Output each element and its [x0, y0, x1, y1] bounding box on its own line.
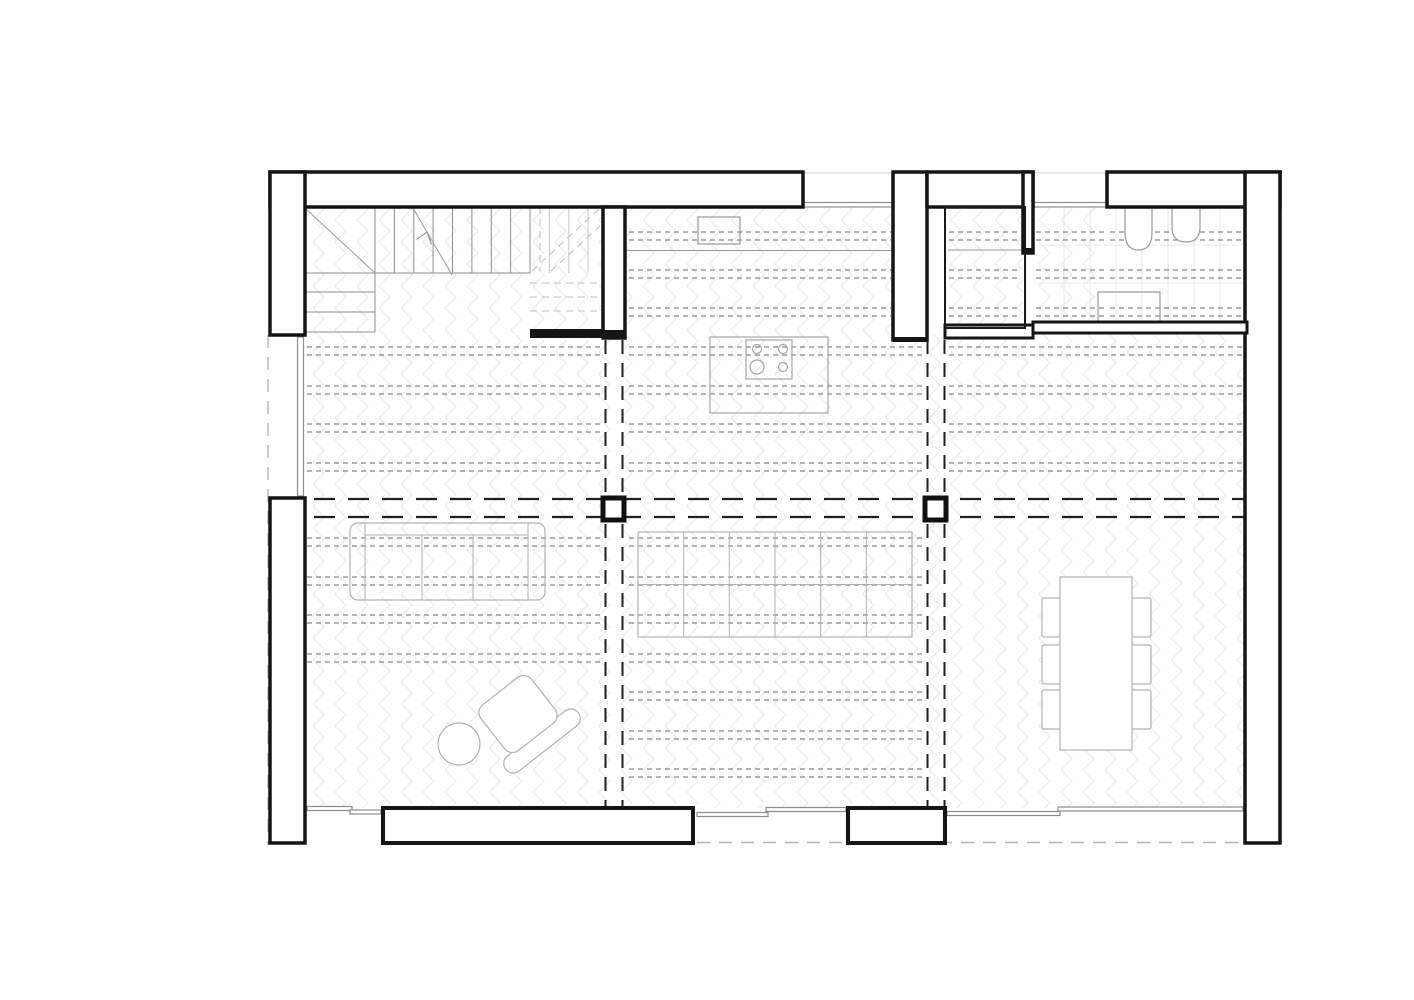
bath-sink [1172, 207, 1200, 242]
window-bottom-3b [1058, 807, 1243, 811]
dining-chair [1130, 690, 1151, 729]
wall-left-lower [270, 498, 305, 843]
wall-left-upper [270, 172, 305, 335]
toilet [1125, 207, 1152, 250]
column [603, 498, 624, 520]
floor-wc [947, 210, 1023, 326]
pouf [438, 723, 480, 765]
window-bottom-1b [350, 810, 381, 814]
wall-wc-bottom [945, 325, 1033, 338]
wall-bottom-block-right [848, 808, 945, 843]
window-top-1 [803, 203, 893, 208]
window-bottom-3a [947, 812, 1060, 816]
wall-bottom-block-left [383, 808, 693, 843]
wall-stair-divider [603, 207, 625, 338]
wall-stair-stub-solid [530, 329, 603, 338]
dining-chair [1130, 645, 1151, 684]
floor-plan-page [0, 0, 1414, 1000]
wall-top-left [270, 172, 803, 207]
window-left [298, 337, 304, 496]
dining-chair [1130, 598, 1151, 637]
wall-divider-cap-solid [603, 330, 625, 338]
window-bottom-1a [307, 807, 352, 811]
wall-right [1245, 172, 1280, 843]
window-top-2 [1033, 203, 1107, 208]
wall-kitchen-cap-solid [893, 337, 927, 342]
floor-plan-canvas [0, 0, 1414, 1000]
wall-top-mid [927, 172, 1033, 207]
floor-kitchen [627, 207, 893, 337]
sliding-door-panel-a [697, 813, 768, 817]
column [925, 498, 946, 520]
floor-stair [305, 207, 603, 334]
floor-plan-drawing [0, 0, 1414, 1000]
sliding-door-panel-b [766, 808, 846, 812]
floor-hall [1036, 207, 1105, 321]
wall-bath-bottom [1033, 322, 1247, 333]
wall-kitchen-right [893, 172, 927, 340]
dining-table [1060, 577, 1132, 750]
